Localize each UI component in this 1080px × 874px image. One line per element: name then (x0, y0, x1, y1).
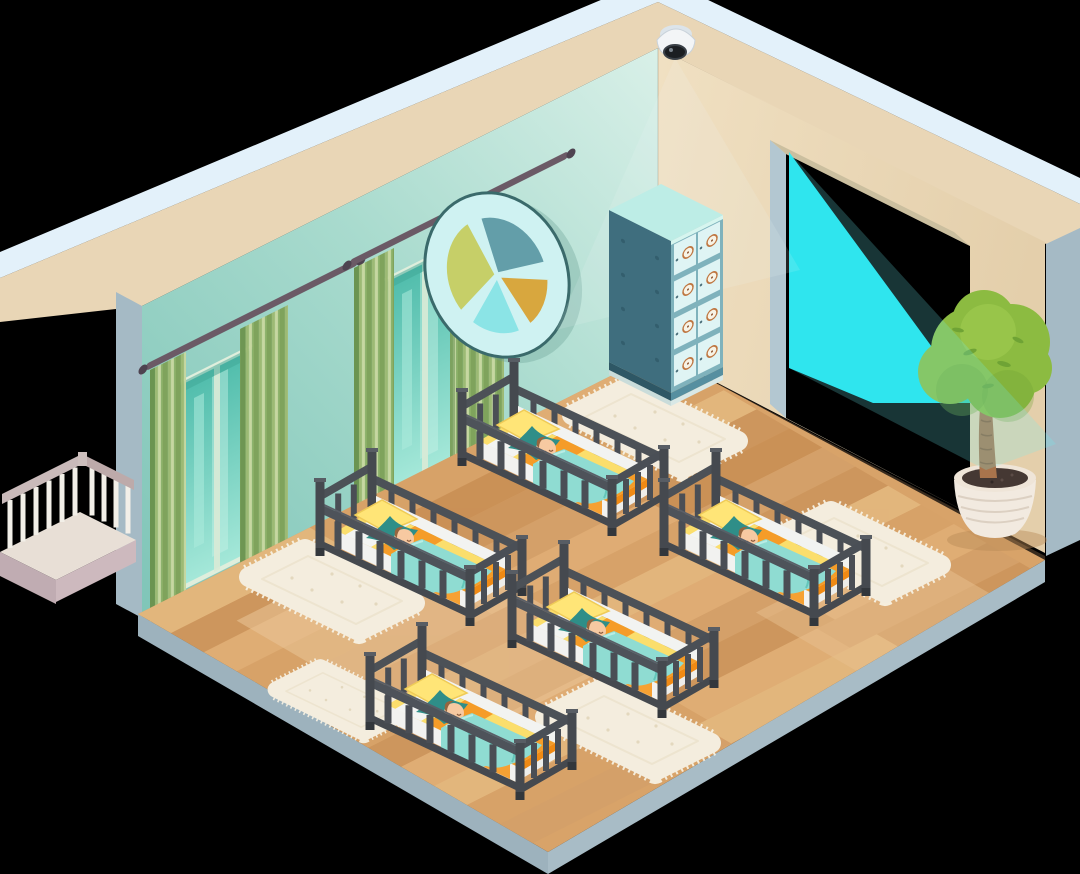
isometric-scene (0, 0, 1080, 874)
locker-cabinet (609, 184, 723, 406)
nursery-room-illustration (0, 0, 1080, 874)
balcony-railing (0, 452, 136, 604)
doorway-jamb (770, 140, 786, 418)
railing-top-rail (2, 454, 82, 504)
window-mullion (214, 363, 220, 572)
camera-lens (664, 45, 686, 59)
right-wall-end-face (1046, 228, 1080, 556)
curtain-panel (150, 352, 186, 622)
locker-front (671, 215, 723, 406)
locker-side (609, 210, 671, 406)
